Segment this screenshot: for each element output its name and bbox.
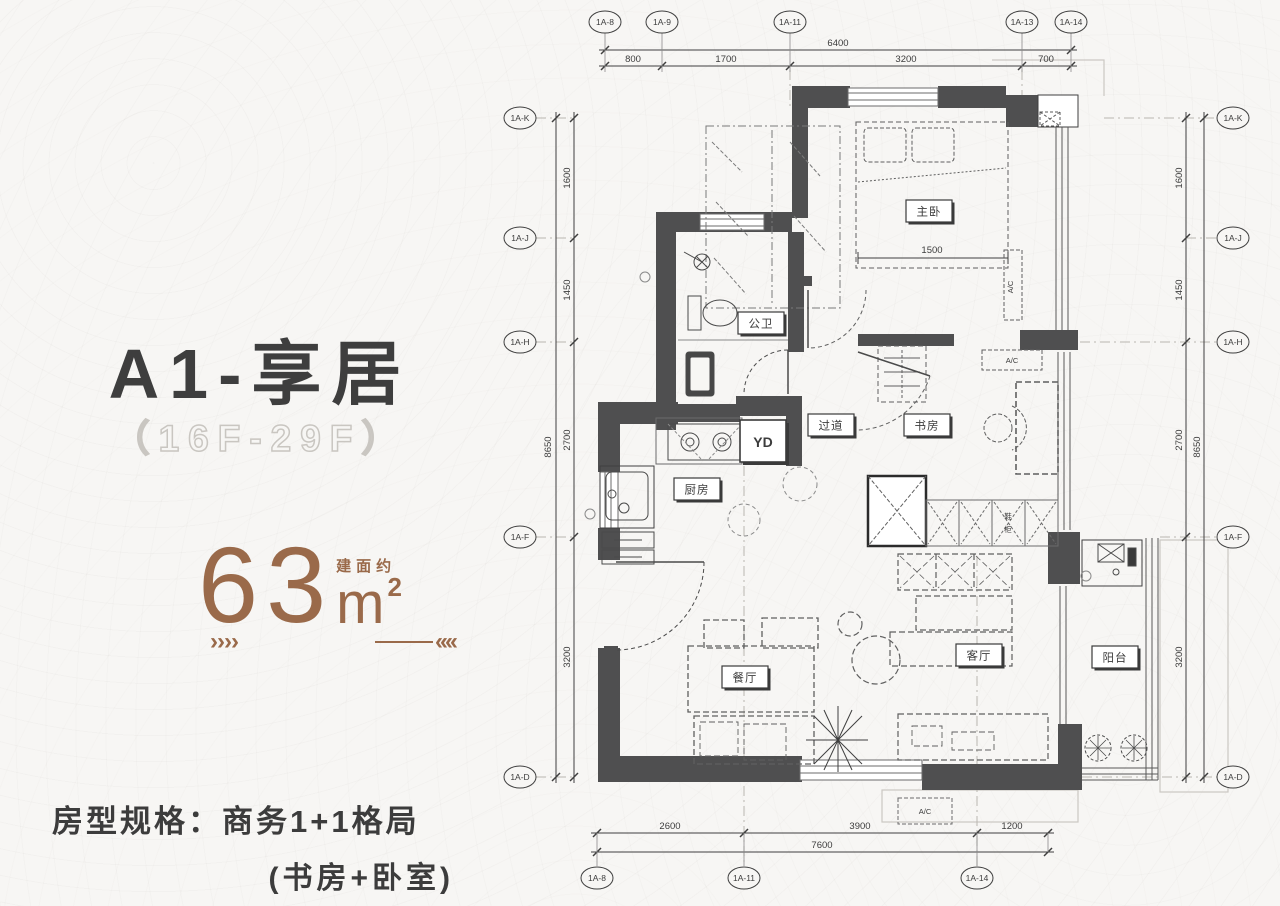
svg-text:1A-F: 1A-F	[1224, 532, 1242, 542]
svg-text:2600: 2600	[659, 821, 680, 832]
svg-text:公卫: 公卫	[749, 318, 774, 331]
desk	[1016, 382, 1058, 474]
room-label-dining: 餐厅	[722, 666, 771, 691]
svg-text:700: 700	[1038, 54, 1054, 65]
area-unit: m	[336, 578, 384, 630]
dim-top-total: 6400	[827, 38, 848, 49]
arrow-line	[375, 641, 433, 643]
svg-text:1600: 1600	[1174, 167, 1185, 188]
shoe-cabinet-label-1: 鞋	[1004, 511, 1012, 521]
svg-text:1A-J: 1A-J	[1224, 233, 1241, 243]
svg-text:1A-8: 1A-8	[596, 17, 614, 27]
spec-line-1: 房型规格：商务1+1格局	[52, 796, 460, 841]
room-label-corridor: 过道	[808, 414, 857, 439]
dining	[688, 618, 818, 764]
area-block: 63 建面约 m 2	[198, 534, 402, 637]
dim-right-total: 8650	[1192, 436, 1203, 457]
entry-door	[616, 562, 704, 650]
svg-text:3200: 3200	[562, 646, 573, 667]
study	[858, 346, 1058, 546]
axis-reference-lines	[536, 70, 1217, 866]
spec-line-2: (书房+卧室)	[52, 853, 460, 897]
room-label-balcony: 阳台	[1092, 646, 1141, 671]
room-label-kitchen: 厨房	[674, 478, 723, 503]
room-label-study: 书房	[904, 414, 953, 439]
axis-bubbles-bottom	[581, 867, 993, 889]
axis-bubbles-right	[1217, 107, 1249, 788]
svg-text:主卧: 主卧	[917, 206, 942, 219]
svg-text:1A-14: 1A-14	[966, 873, 989, 883]
svg-text:3200: 3200	[895, 54, 916, 65]
shoe-cabinet-label-2: 柜	[1004, 524, 1012, 534]
svg-text:800: 800	[625, 54, 641, 65]
svg-text:1A-J: 1A-J	[511, 233, 528, 243]
spec-block: 房型规格：商务1+1格局 (书房+卧室)	[52, 796, 460, 897]
svg-text:1A-H: 1A-H	[510, 337, 529, 347]
svg-text:1A-D: 1A-D	[1223, 772, 1242, 782]
svg-text:餐厅: 餐厅	[733, 671, 758, 685]
svg-text:厨房: 厨房	[685, 484, 710, 497]
lounge-chair	[852, 636, 900, 684]
floor-plan: 1500	[495, 0, 1280, 906]
ac-label-outdoor: A/C	[919, 807, 932, 816]
decorative-arrows: ›››› ‹‹‹‹	[210, 628, 455, 656]
toilet-icon	[688, 296, 701, 330]
bath-door-arc	[744, 350, 788, 394]
svg-text:1700: 1700	[715, 54, 736, 65]
svg-text:1A-13: 1A-13	[1011, 17, 1034, 27]
info-panel: A1-享居 （16F-29F） 63 建面约 m 2 ›››› ‹‹‹‹ 房型规…	[0, 0, 500, 906]
shoe-cabinet	[926, 500, 1058, 546]
room-label-living: 客厅	[956, 644, 1005, 669]
ac-label-bedroom: A/C	[1006, 280, 1015, 293]
floorplan-page: A1-享居 （16F-29F） 63 建面约 m 2 ›››› ‹‹‹‹ 房型规…	[0, 0, 1280, 906]
unit-title: A1-享居	[60, 318, 460, 419]
glazing-lines	[1038, 95, 1158, 780]
svg-text:1A-K: 1A-K	[1224, 113, 1243, 123]
svg-text:客厅: 客厅	[967, 649, 992, 663]
study-closet	[878, 346, 926, 402]
living	[838, 554, 1048, 760]
chevrons-right-icon: ››››	[210, 628, 238, 656]
dim-left-total: 8650	[543, 436, 554, 457]
shaft	[868, 476, 926, 546]
svg-text:1A-H: 1A-H	[1223, 337, 1242, 347]
desk-chair	[984, 414, 1012, 442]
svg-text:1450: 1450	[562, 279, 573, 300]
bedroom-door-arc	[808, 290, 866, 348]
svg-text:3900: 3900	[849, 821, 870, 832]
svg-text:1A-11: 1A-11	[779, 17, 801, 27]
svg-text:阳台: 阳台	[1103, 651, 1128, 665]
room-label-bath: 公卫	[738, 312, 787, 337]
laundry-label: YD	[753, 434, 772, 450]
axis-bubbles-left	[504, 107, 536, 788]
svg-text:书房: 书房	[915, 420, 940, 433]
area-superscript: 2	[387, 572, 401, 603]
area-value: 63	[198, 534, 334, 637]
ac-label-study: A/C	[1006, 356, 1019, 365]
bed-width-label: 1500	[921, 245, 942, 256]
svg-text:1200: 1200	[1001, 821, 1022, 832]
svg-text:1A-14: 1A-14	[1060, 17, 1083, 27]
svg-text:2700: 2700	[1174, 429, 1185, 450]
svg-text:2700: 2700	[562, 429, 573, 450]
tv-console	[898, 714, 1048, 760]
svg-text:1600: 1600	[562, 167, 573, 188]
svg-text:1A-F: 1A-F	[511, 532, 529, 542]
svg-text:3200: 3200	[1174, 646, 1185, 667]
dim-bottom-total: 7600	[811, 840, 832, 851]
svg-text:1A-K: 1A-K	[511, 113, 530, 123]
room-label-master: 主卧	[906, 200, 955, 225]
svg-text:1A-D: 1A-D	[510, 772, 529, 782]
chevrons-left-icon: ‹‹‹‹	[435, 628, 455, 656]
svg-text:1450: 1450	[1174, 279, 1185, 300]
svg-text:过道: 过道	[819, 419, 844, 433]
svg-text:1A-11: 1A-11	[733, 873, 755, 883]
svg-text:1A-9: 1A-9	[653, 17, 671, 27]
floor-range: （16F-29F）	[60, 408, 460, 462]
svg-text:1A-8: 1A-8	[588, 873, 606, 883]
